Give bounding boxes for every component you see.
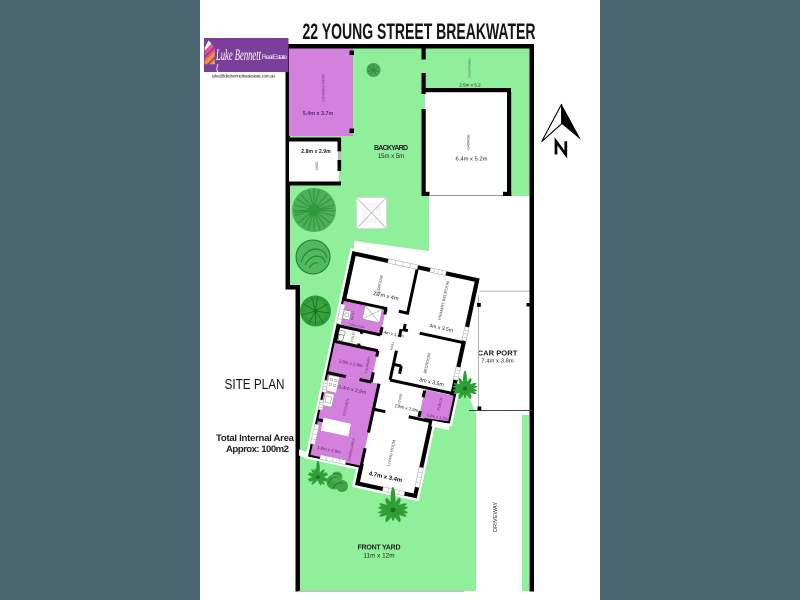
svg-text:COVERED PATIO: COVERED PATIO bbox=[322, 74, 326, 102]
svg-text:11m x 12m: 11m x 12m bbox=[363, 553, 394, 560]
svg-text:2.8m x 2.9m: 2.8m x 2.9m bbox=[301, 149, 331, 155]
svg-text:22 YOUNG STREET BREAKWATER: 22 YOUNG STREET BREAKWATER bbox=[303, 19, 536, 44]
svg-text:15m x 5m: 15m x 5m bbox=[378, 154, 404, 160]
svg-text:6.4m x 5.2m: 6.4m x 5.2m bbox=[456, 156, 488, 162]
svg-text:SITE PLAN: SITE PLAN bbox=[225, 377, 285, 393]
svg-text:FRONT YARD: FRONT YARD bbox=[358, 545, 401, 552]
svg-text:SHED: SHED bbox=[315, 161, 319, 171]
svg-text:BACKYARD: BACKYARD bbox=[374, 145, 408, 152]
svg-text:COURTYARD: COURTYARD bbox=[468, 58, 472, 78]
svg-text:DRIVEWAY: DRIVEWAY bbox=[493, 502, 499, 532]
svg-text:GARAGE: GARAGE bbox=[467, 134, 471, 150]
svg-text:Approx: 100m2: Approx: 100m2 bbox=[226, 444, 289, 455]
svg-text:5.4m x 3.7m: 5.4m x 3.7m bbox=[303, 111, 334, 117]
svg-text:7.4m x 3.8m: 7.4m x 3.8m bbox=[481, 359, 514, 365]
svg-text:Luke Bennett: Luke Bennett bbox=[215, 47, 261, 64]
svg-text:Total Internal Area: Total Internal Area bbox=[216, 433, 295, 444]
svg-text:luke@lukebennettrealestate.com: luke@lukebennettrealestate.com.au bbox=[212, 74, 276, 79]
svg-text:Real Estate: Real Estate bbox=[262, 54, 288, 61]
svg-text:2.5m x 5.2: 2.5m x 5.2 bbox=[459, 82, 481, 87]
svg-text:CAR PORT: CAR PORT bbox=[478, 349, 518, 358]
